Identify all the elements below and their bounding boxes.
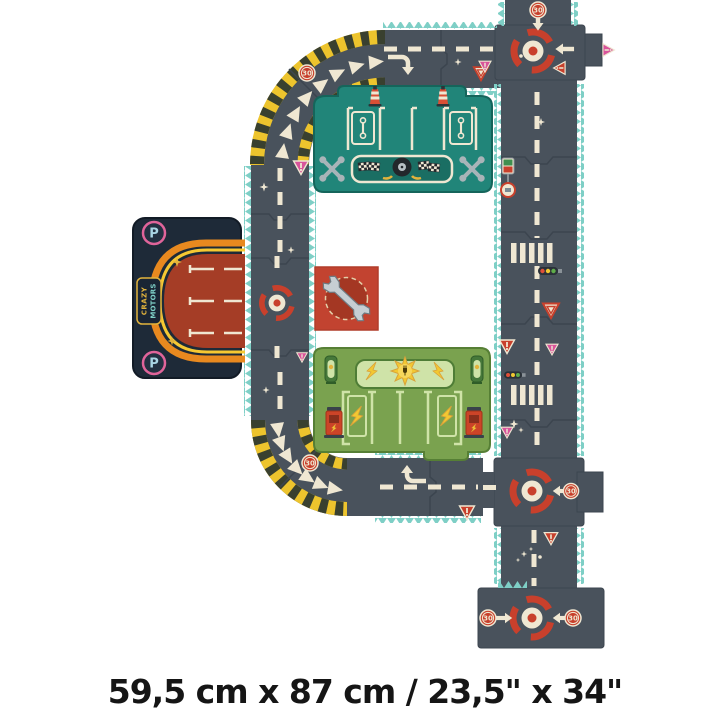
product-photo: 30 30 30 30 30 30	[0, 0, 720, 720]
speed-30-sign: 30	[302, 455, 318, 471]
dimensions-label: 59,5 cm x 87 cm / 23,5" x 34"	[108, 672, 623, 711]
crazy-motors-logo: CRAZY MOTORS	[137, 278, 161, 324]
svg-text:MOTORS: MOTORS	[150, 283, 158, 318]
svg-text:P: P	[149, 357, 159, 372]
finish-banner	[352, 156, 452, 182]
charging-station-building	[314, 348, 490, 460]
lamp-icon	[471, 356, 483, 384]
checkered-flag-icon	[368, 162, 380, 171]
svg-text:P: P	[149, 227, 159, 242]
warning-sign-icon	[603, 44, 614, 57]
lamp-icon	[325, 356, 337, 384]
svg-text:30: 30	[483, 614, 493, 622]
roundabout-piece-top-tab	[585, 34, 602, 66]
parking-garage-building: P P CRAZY MOTORS	[133, 218, 245, 378]
svg-text:CRAZY: CRAZY	[141, 286, 149, 315]
roundabout-piece-middle-tab	[577, 472, 603, 512]
svg-text:30: 30	[533, 6, 543, 14]
sun-plug-icon	[391, 357, 419, 385]
speed-30-sign: 30	[480, 610, 496, 626]
speed-30-sign: 30	[563, 483, 578, 498]
svg-text:30: 30	[566, 487, 576, 495]
checkered-flag-icon	[418, 161, 430, 170]
charging-post-icon	[464, 407, 484, 438]
repair-card	[315, 267, 378, 330]
charging-post-icon	[324, 407, 344, 438]
speed-30-sign: 30	[565, 610, 581, 626]
speed-30-sign: 30	[299, 65, 315, 81]
speed-30-sign: 30	[530, 2, 546, 18]
checkered-flag-icon	[428, 163, 440, 172]
svg-text:30: 30	[305, 459, 315, 467]
garage-building	[314, 86, 492, 192]
svg-text:30: 30	[302, 69, 312, 77]
parking-p-badge: P	[143, 352, 165, 374]
parking-p-badge: P	[143, 222, 165, 244]
road-puzzle-graphic: 30 30 30 30 30 30	[0, 0, 720, 720]
svg-text:30: 30	[568, 614, 578, 622]
